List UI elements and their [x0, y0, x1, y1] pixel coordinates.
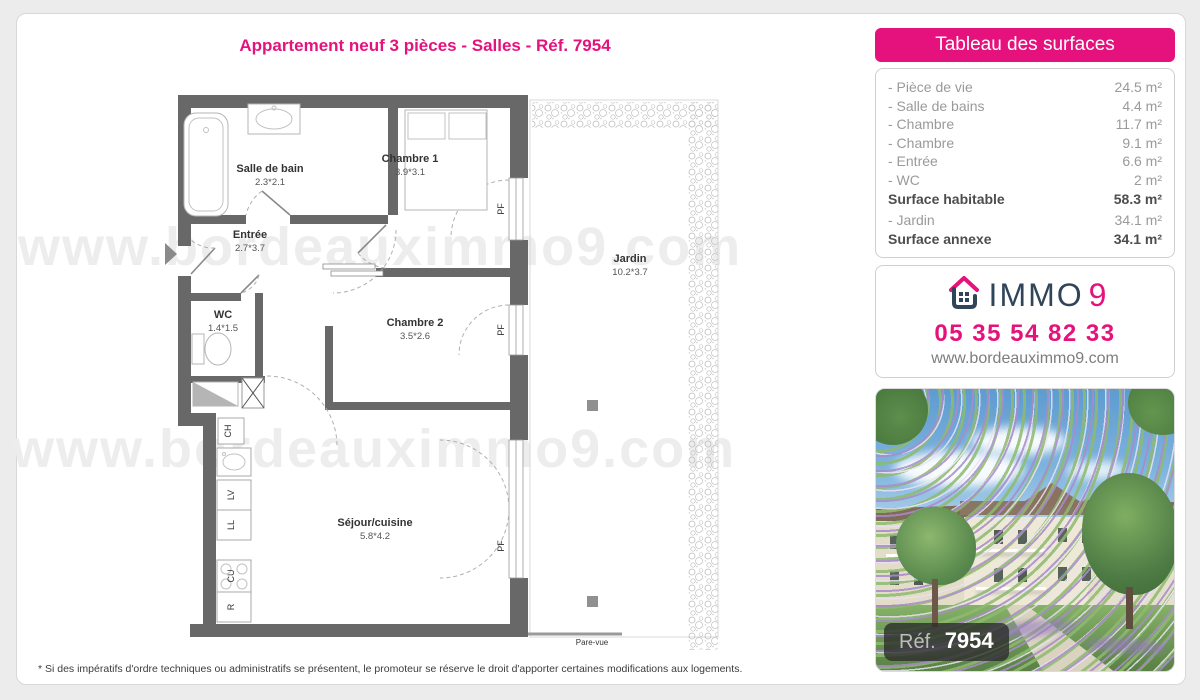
room-label-salle-de-bain: Salle de bain — [236, 163, 304, 175]
fence-label: Pare-vue — [576, 638, 609, 647]
row-label: Surface habitable — [888, 190, 1005, 209]
room-label-wc: WC — [214, 309, 232, 321]
house-icon — [944, 274, 984, 317]
room-label-chambre-1: Chambre 1 — [382, 153, 439, 165]
building-photo: Réf. 7954 — [875, 388, 1175, 672]
row-label: - WC — [888, 171, 920, 190]
brand-digit: 9 — [1089, 277, 1107, 314]
row-label: Surface annexe — [888, 230, 992, 249]
toilet — [192, 334, 204, 364]
appliance-label-lv: LV — [226, 490, 236, 500]
photo-tree-trunk — [932, 579, 938, 627]
reference-badge: Réf. 7954 — [884, 623, 1009, 661]
reference-number: 7954 — [945, 628, 994, 654]
table-row-total-habitable: Surface habitable 58.3 m² — [888, 190, 1162, 209]
appliance-label-ll: LL — [226, 520, 236, 530]
row-value: 11.7 m² — [1116, 115, 1162, 134]
room-dims-wc: 1.4*1.5 — [208, 323, 238, 334]
garden-post — [587, 596, 598, 607]
brand-text: IMMO — [989, 277, 1084, 314]
row-label: - Pièce de vie — [888, 78, 973, 97]
room-dims-entree: 2.7*3.7 — [235, 243, 265, 254]
table-row-total-annexe: Surface annexe 34.1 m² — [888, 230, 1162, 249]
closet — [193, 378, 264, 408]
hedge-right — [688, 102, 718, 650]
room-dims-jardin: 10.2*3.7 — [612, 267, 647, 278]
table-row: - Salle de bains 4.4 m² — [888, 97, 1162, 116]
table-row: - Chambre 11.7 m² — [888, 115, 1162, 134]
room-label-sejour-cuisine: Séjour/cuisine — [337, 517, 412, 529]
row-value: 6.6 m² — [1122, 152, 1162, 171]
row-value: 24.5 m² — [1115, 78, 1162, 97]
appliance-label-ch: CH — [223, 425, 233, 438]
table-row: - Jardin 34.1 m² — [888, 211, 1162, 230]
row-label: - Entrée — [888, 152, 938, 171]
row-value: 34.1 m² — [1114, 230, 1162, 249]
garden-area: Pare-vue Jardin 10.2*3.7 — [528, 100, 718, 650]
disclaimer-text: * Si des impératifs d'ordre techniques o… — [38, 663, 742, 675]
room-dims-sejour-cuisine: 5.8*4.2 — [360, 531, 390, 542]
entrance-arrow-icon — [165, 243, 177, 265]
agency-card: IMMO 9 05 35 54 82 33 www.bordeauximmo9.… — [875, 265, 1175, 378]
row-value: 34.1 m² — [1115, 211, 1162, 230]
room-label-chambre-2: Chambre 2 — [387, 317, 444, 329]
row-label: - Salle de bains — [888, 97, 985, 116]
appliance-label-r: R — [226, 603, 236, 610]
bathtub — [184, 113, 228, 216]
room-dims-chambre-2: 3.5*2.6 — [400, 331, 430, 342]
room-label-entree: Entrée — [233, 229, 267, 241]
table-row: - Chambre 9.1 m² — [888, 134, 1162, 153]
garden-post — [587, 400, 598, 411]
floor-plan: Pare-vue Jardin 10.2*3.7 — [160, 88, 740, 653]
table-row: - Pièce de vie 24.5 m² — [888, 78, 1162, 97]
appliance-label-cu: CU — [226, 570, 236, 583]
window-label-pf: PF — [496, 324, 506, 336]
sliding-door — [331, 271, 383, 276]
photo-tree — [896, 507, 976, 585]
photo-tree-trunk — [1126, 587, 1133, 629]
agency-phone: 05 35 54 82 33 — [876, 320, 1174, 348]
kitchen-appliances: CH LV LL CU R — [217, 418, 251, 622]
row-value: 2 m² — [1134, 171, 1162, 190]
row-label: - Chambre — [888, 134, 954, 153]
page-title: Appartement neuf 3 pièces - Salles - Réf… — [25, 36, 825, 56]
kitchen-sink — [217, 448, 251, 476]
window-label-pf: PF — [496, 203, 506, 215]
agency-website-link[interactable]: www.bordeauximmo9.com — [876, 350, 1174, 368]
row-label: - Jardin — [888, 211, 935, 230]
row-value: 9.1 m² — [1122, 134, 1162, 153]
room-label-jardin: Jardin — [613, 253, 646, 265]
table-row: - WC 2 m² — [888, 171, 1162, 190]
row-label: - Chambre — [888, 115, 954, 134]
row-value: 58.3 m² — [1114, 190, 1162, 209]
table-row: - Entrée 6.6 m² — [888, 152, 1162, 171]
room-dims-salle-de-bain: 2.3*2.1 — [255, 177, 285, 188]
sliding-door — [323, 264, 375, 269]
agency-logo: IMMO 9 — [876, 275, 1174, 315]
surfaces-panel-header: Tableau des surfaces — [875, 28, 1175, 62]
row-value: 4.4 m² — [1122, 97, 1162, 116]
window-label-pf: PF — [496, 540, 506, 552]
reference-label: Réf. — [899, 631, 936, 654]
surfaces-table: - Pièce de vie 24.5 m² - Salle de bains … — [875, 68, 1175, 258]
room-dims-chambre-1: 3.9*3.1 — [395, 167, 425, 178]
